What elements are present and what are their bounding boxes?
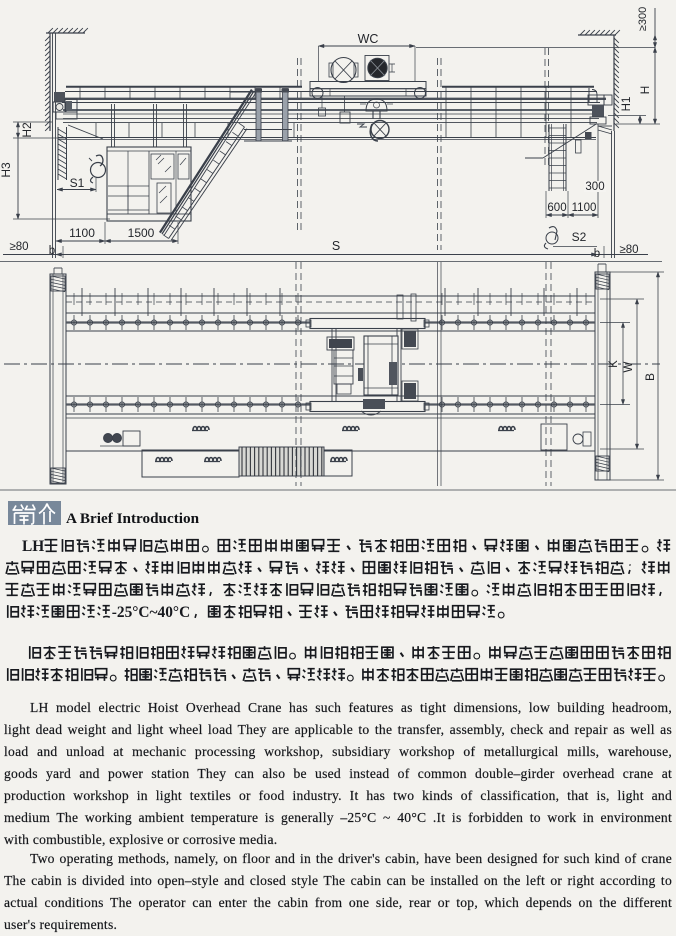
svg-text:-25°C~40°C: -25°C~40°C bbox=[112, 604, 190, 621]
svg-text:LH: LH bbox=[22, 538, 44, 555]
